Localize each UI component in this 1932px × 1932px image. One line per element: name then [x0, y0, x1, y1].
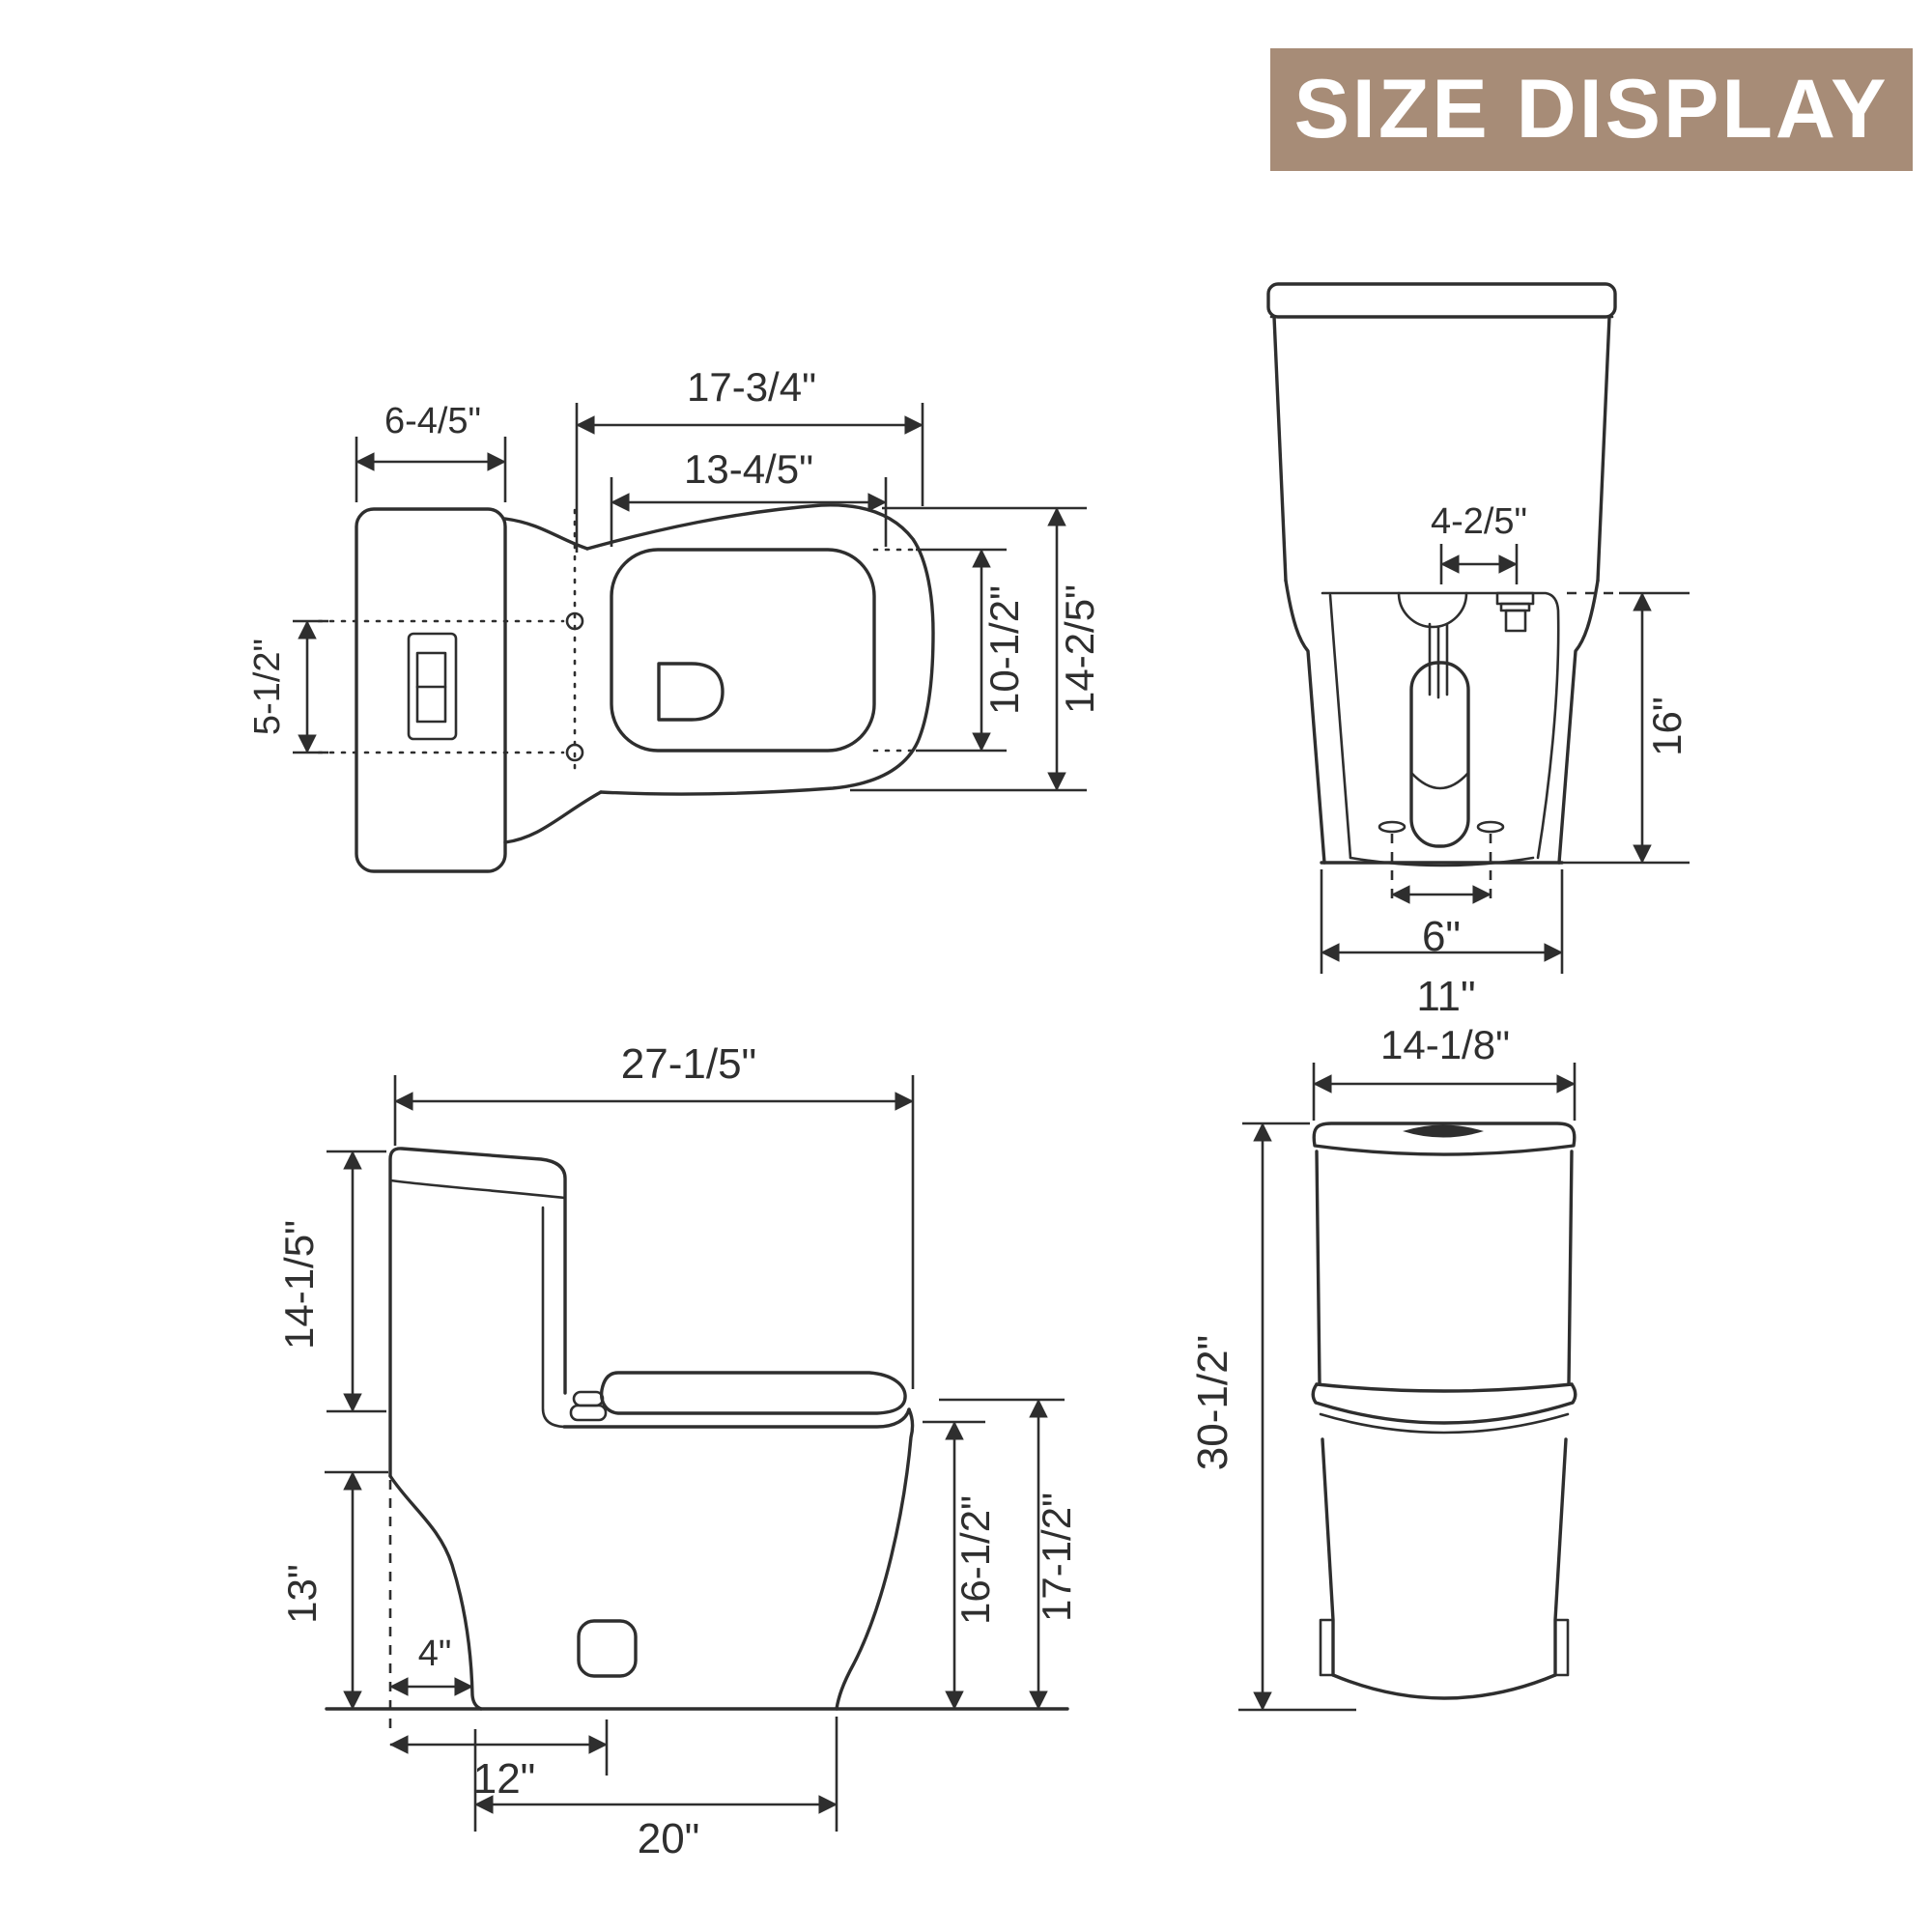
seat-hinge-lower — [571, 1406, 606, 1420]
dim-label-bowl-height: 13" — [279, 1564, 325, 1624]
side-outlet — [579, 1621, 636, 1676]
bowl-opening-outline — [611, 550, 874, 751]
dim-label-button-spacing: 5-1/2" — [247, 639, 288, 735]
dim-label-inner-length: 13-4/5" — [684, 446, 813, 492]
dim-label-trap-setback: 4" — [418, 1634, 452, 1674]
banner-title: SIZE DISPLAY — [1294, 62, 1889, 157]
seat-hinge-upper — [574, 1392, 603, 1406]
front-foot-tab-right — [1555, 1620, 1568, 1675]
hidden-line-bowl-right — [874, 550, 916, 751]
fill-valve-dome — [1399, 593, 1466, 627]
neck-bottom-edge — [505, 792, 601, 842]
back-pedestal-left — [1286, 581, 1324, 863]
dim-label-tank-height: 14-1/5" — [276, 1220, 322, 1350]
dim-label-overall-height: 30-1/2" — [1189, 1335, 1236, 1470]
trapway-outline — [1411, 663, 1468, 846]
side-view: 27-1/5" 14-1/5" 13" 4" 12" 20" 16-1/2" — [276, 1040, 1079, 1862]
supply-fitting-top — [1497, 593, 1533, 604]
toilet-dimension-drawing: 6-4/5" 17-3/4" 13-4/5" 5-1/2" 10-1/2" 14… — [0, 0, 1932, 1932]
front-tank-side-left — [1317, 1151, 1320, 1384]
dim-label-seat-height: 17-1/2" — [1034, 1492, 1079, 1622]
bolt-cap-right — [1478, 822, 1503, 832]
dim-label-overall-width: 14-2/5" — [1057, 584, 1102, 714]
flush-button-front — [1403, 1125, 1484, 1138]
supply-fitting-body — [1506, 611, 1525, 631]
front-seat-top-arc — [1317, 1384, 1572, 1391]
top-view: 6-4/5" 17-3/4" 13-4/5" 5-1/2" 10-1/2" 14… — [247, 364, 1102, 871]
dim-label-overall-depth: 27-1/5" — [621, 1040, 756, 1088]
side-bowl-front-profile — [837, 1409, 913, 1709]
dim-label-valve-offset: 4-2/5" — [1431, 501, 1527, 542]
dim-label-tank-depth: 6-4/5" — [384, 401, 481, 441]
side-tank-outline — [390, 1149, 565, 1476]
front-tank-side-right — [1569, 1151, 1572, 1384]
size-display-banner: SIZE DISPLAY — [1270, 48, 1913, 171]
back-tank-lid — [1268, 284, 1615, 317]
front-foot-tab-left — [1321, 1620, 1333, 1675]
back-pedestal-right — [1559, 581, 1598, 863]
ext-lines-tank-depth — [356, 437, 505, 502]
top-view-tank-outline — [356, 509, 505, 871]
dim-label-bowl-width: 10-1/2" — [981, 585, 1027, 715]
dim-label-16: 16" — [1644, 696, 1690, 756]
side-tank-lid-line — [390, 1180, 565, 1198]
trapway-water-line — [1411, 773, 1468, 788]
front-view: 14-1/8" 30-1/2" — [1189, 1022, 1576, 1710]
ext-lines-button-spacing — [293, 621, 328, 753]
water-spot-outline — [659, 664, 723, 720]
side-tank-front-recess — [543, 1207, 564, 1427]
dim-label-rough-in: 12" — [473, 1755, 536, 1803]
fill-valve-stem — [1430, 624, 1447, 697]
ext-lines-front-width — [1314, 1063, 1575, 1121]
ext-lines-tank-height — [327, 1151, 386, 1411]
back-tank-bottom-and-inner-right — [1322, 593, 1558, 858]
ext-lines-overall-height — [1238, 1123, 1356, 1710]
dim-label-front-width: 14-1/8" — [1380, 1022, 1510, 1067]
bolt-cap-left — [1379, 822, 1405, 832]
dim-label-rim-height: 16-1/2" — [952, 1495, 998, 1625]
back-tank-side-right — [1598, 317, 1609, 581]
dim-label-outer-length: 17-3/4" — [687, 364, 816, 410]
front-base-arc — [1333, 1675, 1555, 1698]
ext-lines-overall-depth — [395, 1075, 913, 1389]
front-bowl-side-right — [1555, 1439, 1566, 1675]
dim-label-base-width: 11" — [1416, 973, 1475, 1020]
back-tank-side-left — [1274, 317, 1286, 581]
front-bowl-side-left — [1322, 1439, 1333, 1675]
size-display-diagram: 6-4/5" 17-3/4" 13-4/5" 5-1/2" 10-1/2" 14… — [0, 0, 1932, 1932]
back-view: 4-2/5" 16" 6" 11" — [1268, 284, 1690, 1020]
back-inner-wall-left — [1330, 595, 1350, 858]
dim-label-base-depth: 20" — [638, 1815, 700, 1862]
side-seat-lid — [602, 1373, 905, 1413]
